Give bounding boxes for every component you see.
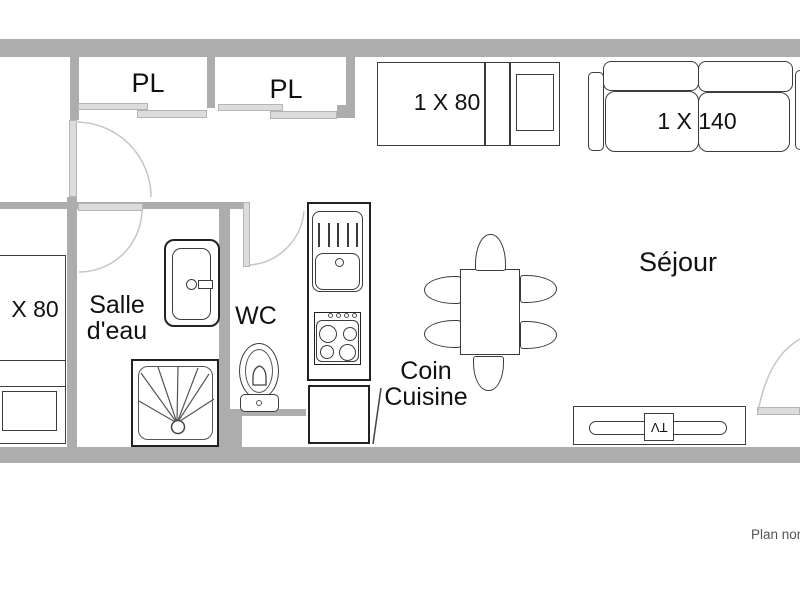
floor-plan: TV PL PL 1 X 80 1 X 140 X 80 Salle d'eau…: [0, 0, 800, 600]
sink-drain: [335, 258, 344, 267]
drainboard-line: [356, 223, 358, 247]
closet-left-sliding-door-front: [78, 103, 148, 110]
single-bed-left-size-label: X 80: [11, 298, 58, 322]
stove-knob: [328, 313, 333, 318]
burner: [343, 327, 357, 341]
single-bed-top-divider-line: [509, 62, 511, 146]
shower-tray-inner: [138, 366, 213, 440]
sofa-back-cushion-left: [603, 61, 699, 91]
closet-left-label: PL: [131, 69, 164, 97]
bathroom-label-line2: d'eau: [87, 318, 147, 344]
bathroom-label-line1: Salle: [87, 292, 147, 318]
chair-bottom: [473, 356, 504, 391]
bathroom-door-swing-arc: [79, 209, 142, 272]
living-room-label: Séjour: [639, 248, 717, 276]
stove-knob: [352, 313, 357, 318]
wall-bedroom-right: [67, 197, 77, 447]
kitchen-label: Coin Cuisine: [384, 358, 467, 410]
wall-bottom-exterior: [0, 447, 800, 463]
wall-entry-stub: [70, 57, 79, 120]
drainboard-line: [337, 223, 339, 247]
single-bed-left-pillow: [0, 360, 66, 387]
kitchen-label-line1: Coin: [384, 358, 467, 384]
kitchen-label-line2: Cuisine: [384, 384, 467, 410]
entry-door-swing-arc: [76, 122, 151, 197]
chair-right-1: [520, 275, 557, 303]
closet-left-sliding-door-back: [137, 110, 207, 118]
tv-label: TV: [651, 420, 668, 435]
sofa-armrest-right: [795, 70, 800, 150]
burner: [339, 344, 356, 361]
chair-top: [475, 234, 506, 271]
drainboard-line: [318, 223, 320, 247]
closet-right-sliding-door-front: [218, 104, 283, 111]
bedside-table-left-inner: [2, 391, 57, 431]
wc-door-leaf: [243, 202, 250, 267]
wall-shaft-left: [228, 409, 242, 447]
stove-knob: [336, 313, 341, 318]
sofa-armrest-left: [588, 72, 604, 151]
sofa-back-cushion-right: [698, 61, 793, 92]
wall-closet-right-foot: [337, 105, 355, 118]
bedside-table-top-inner: [516, 74, 554, 131]
entry-door-leaf: [69, 120, 77, 197]
washbasin-tap: [198, 280, 213, 289]
drainboard-line: [328, 223, 330, 247]
closet-right-label: PL: [269, 75, 302, 103]
balcony-door-swing-arc: [758, 339, 800, 412]
toilet-bowl-inner: [245, 349, 273, 393]
toilet-tank-button: [256, 400, 262, 406]
burner: [319, 325, 337, 343]
closet-right-sliding-door-back: [270, 111, 337, 119]
washbasin-drain: [186, 279, 197, 290]
wc-door-swing-arc: [250, 211, 304, 265]
bathroom-door-leaf: [78, 203, 143, 211]
tv-box: TV: [644, 413, 674, 441]
wall-top-exterior: [0, 39, 800, 57]
single-bed-top-pillow-line: [484, 62, 486, 146]
kitchen-base-cabinet: [308, 385, 370, 444]
single-bed-top-size-label: 1 X 80: [414, 91, 481, 115]
bathroom-label: Salle d'eau: [87, 292, 147, 344]
kitchen-door-leaf-line: [373, 388, 381, 444]
sofa-bed-size-label: 1 X 140: [657, 110, 736, 134]
balcony-door-leaf: [757, 407, 800, 415]
burner: [320, 345, 334, 359]
wall-closet-divider: [207, 57, 215, 108]
drainboard-line: [347, 223, 349, 247]
stove-knob: [344, 313, 349, 318]
chair-left-1: [424, 276, 461, 304]
plan-footnote: Plan non: [751, 527, 800, 542]
chair-left-2: [424, 320, 461, 348]
chair-right-2: [520, 321, 557, 349]
wc-label: WC: [235, 303, 277, 329]
dining-table: [460, 269, 520, 355]
